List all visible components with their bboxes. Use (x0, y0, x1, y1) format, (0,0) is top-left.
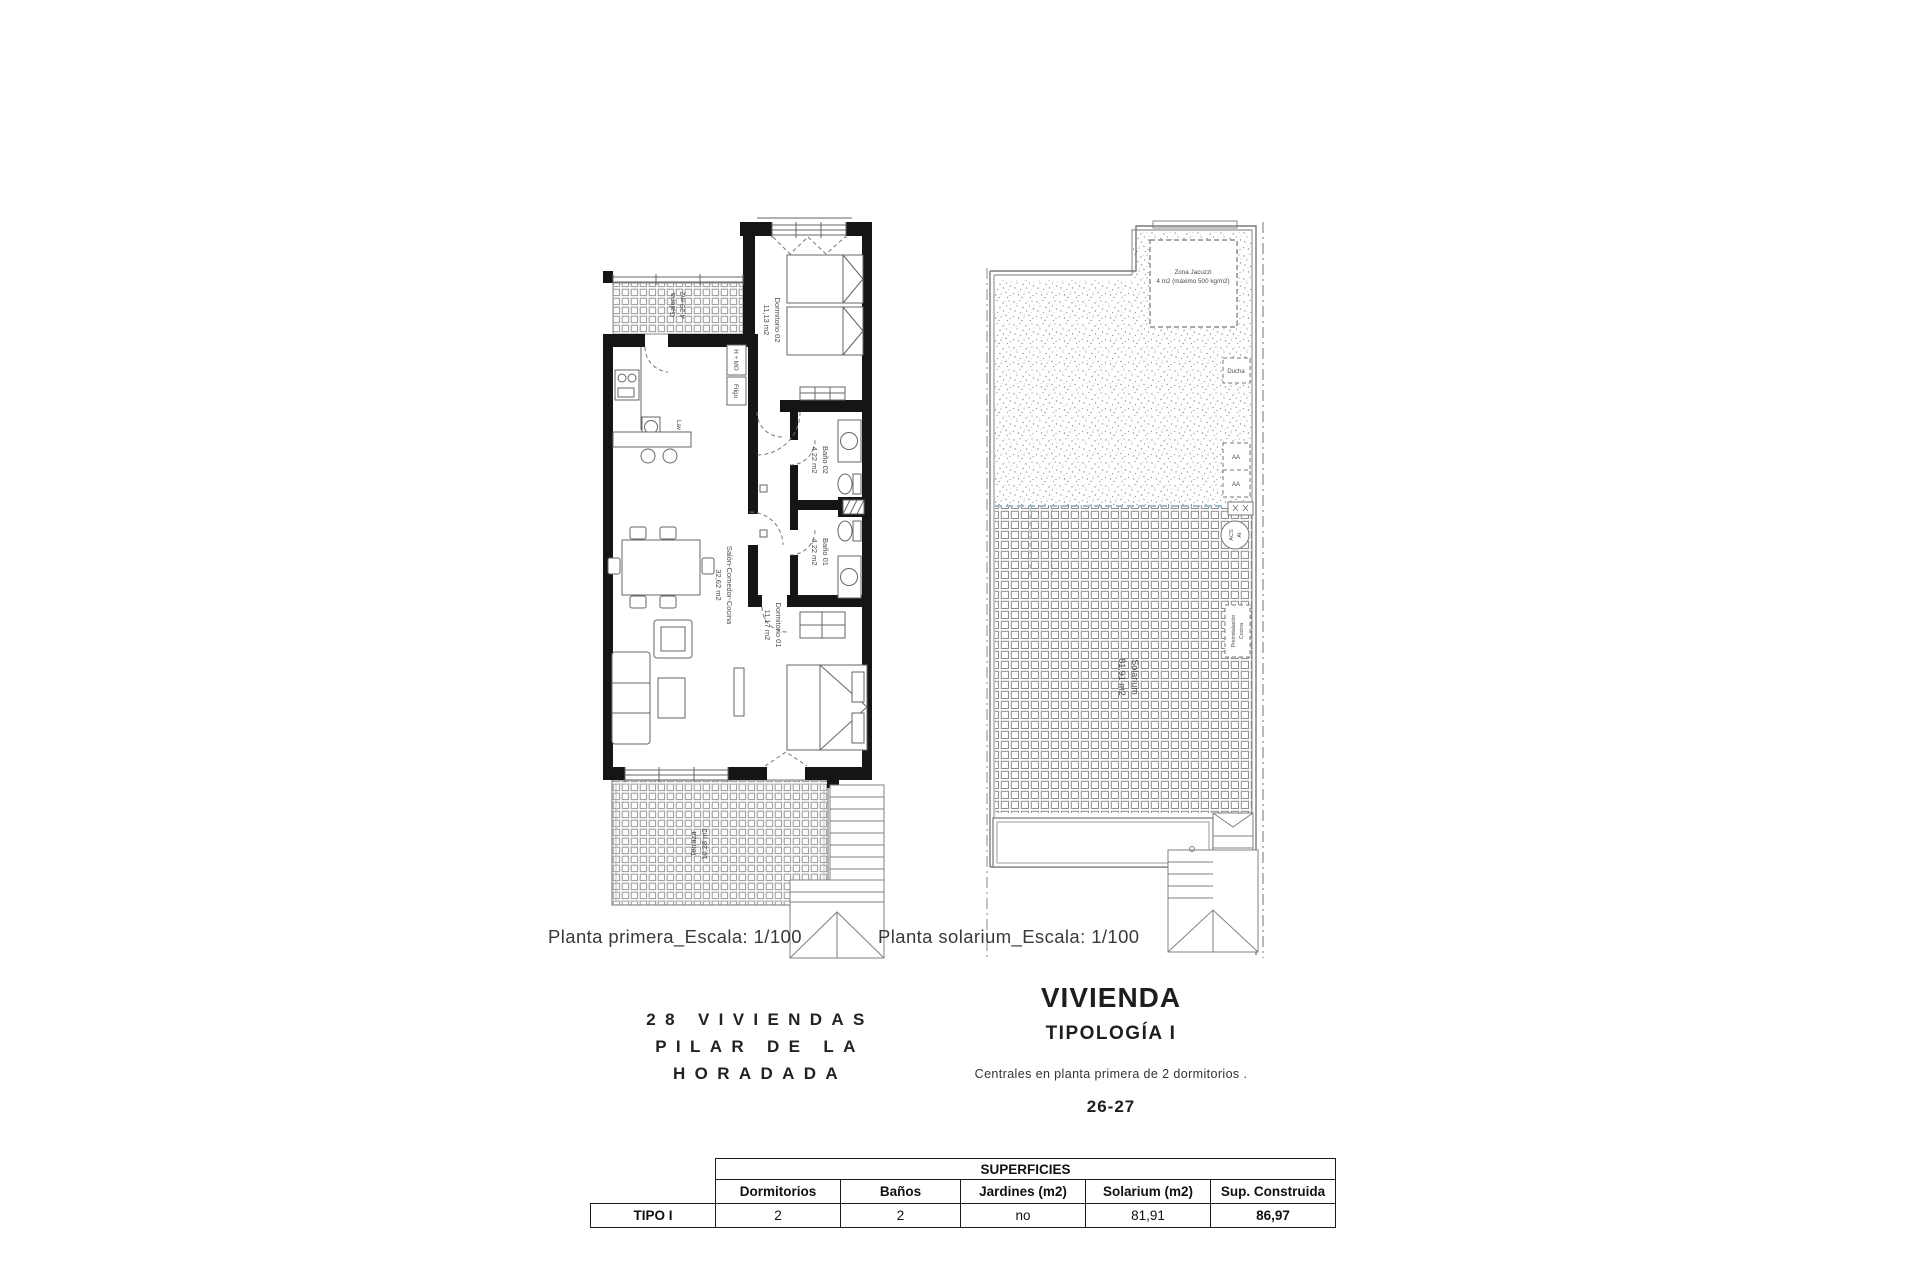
room-label: Baño 01 (821, 538, 830, 566)
superficies-table: SUPERFICIES Dormitorios Baños Jardines (… (590, 1158, 1336, 1228)
table-value: 86,97 (1211, 1204, 1336, 1228)
jacuzzi-label: Zona Jacuzzi (1174, 269, 1211, 276)
room-area: 10,28 m2 (700, 828, 709, 859)
floor-plan-primera: Galeria 4,29 m2 Dormitorio 02 11,13 m2 B… (600, 210, 886, 958)
preinstall-label: Cocina (1239, 623, 1245, 639)
room-area: 4,29 m2 (678, 291, 687, 318)
col-header: Baños (841, 1180, 961, 1204)
row-header: TIPO I (591, 1204, 716, 1228)
project-line: PILAR DE LA (628, 1033, 892, 1060)
shower-label: Ducha (1227, 369, 1245, 375)
ac-unit-label: AA (1232, 455, 1240, 461)
room-area: 11,13 m2 (762, 305, 771, 336)
room-label: Dormitorio 02 (773, 297, 782, 342)
table-spacer (591, 1159, 716, 1180)
project-line: HORADADA (628, 1060, 892, 1087)
room-area: 4,22 m2 (810, 538, 819, 565)
caption-planta-solarium: Planta solarium_Escala: 1/100 (878, 926, 1140, 948)
unit-description: Centrales en planta primera de 2 dormito… (961, 1067, 1261, 1081)
room-label: Baño 02 (821, 446, 830, 474)
ac-unit-label: AA (1232, 482, 1240, 488)
switch-box (760, 530, 767, 537)
double-bed-icon (787, 665, 867, 750)
unit-numbers: 26-27 (961, 1097, 1261, 1117)
unit-title: VIVIENDA (961, 982, 1261, 1014)
project-title: 28 VIVIENDAS PILAR DE LA HORADADA (628, 1006, 892, 1087)
appliance-label: Lav (675, 420, 682, 431)
caption-planta-primera: Planta primera_Escala: 1/100 (548, 926, 802, 948)
appliance-label: H + MO (732, 349, 739, 371)
col-header: Dormitorios (716, 1180, 841, 1204)
table-value: 2 (841, 1204, 961, 1228)
preinstall-label: Preinstalación (1231, 615, 1237, 648)
table-value: 2 (716, 1204, 841, 1228)
floor-plans-canvas: Galeria 4,29 m2 Dormitorio 02 11,13 m2 B… (0, 0, 1920, 1280)
room-area: 4,22 m2 (810, 446, 819, 473)
room-area: 11,17 m2 (763, 610, 772, 641)
table-title: SUPERFICIES (716, 1159, 1336, 1180)
drawing-sheet: { "plans": { "primera": { "caption": "Pl… (0, 0, 1920, 1280)
room-label: Dormitorio 01 (774, 602, 783, 647)
switch-box (760, 485, 767, 492)
svg-text:81,91 m2: 81,91 m2 (1117, 658, 1127, 696)
unit-typology: TIPOLOGÍA I (961, 1023, 1261, 1045)
col-header: Solarium (m2) (1086, 1180, 1211, 1204)
table-value: 81,91 (1086, 1204, 1211, 1228)
unit-title-block: VIVIENDA TIPOLOGÍA I Centrales en planta… (961, 982, 1261, 1117)
room-label: Terraza (689, 831, 698, 857)
room-label: Salón-Comedor-Cocina (725, 546, 734, 625)
acs-label: At (1237, 532, 1243, 538)
room-area: 32,62 m2 (714, 569, 723, 600)
appliance-label: Frigo (732, 384, 739, 399)
floor-plan-solarium: Zona Jacuzzi 4 m2 (máximo 500 kg/m2) Duc… (987, 221, 1263, 960)
svg-text:Solarium: Solarium (1130, 659, 1140, 695)
acs-label: ACS (1229, 529, 1235, 541)
col-header: Jardines (m2) (961, 1180, 1086, 1204)
jacuzzi-note: 4 m2 (máximo 500 kg/m2) (1156, 278, 1229, 285)
table-value: no (961, 1204, 1086, 1228)
table-spacer (591, 1180, 716, 1204)
room-label: Galeria (668, 292, 677, 317)
project-line: 28 VIVIENDAS (628, 1006, 892, 1033)
col-header: Sup. Construida (1211, 1180, 1336, 1204)
